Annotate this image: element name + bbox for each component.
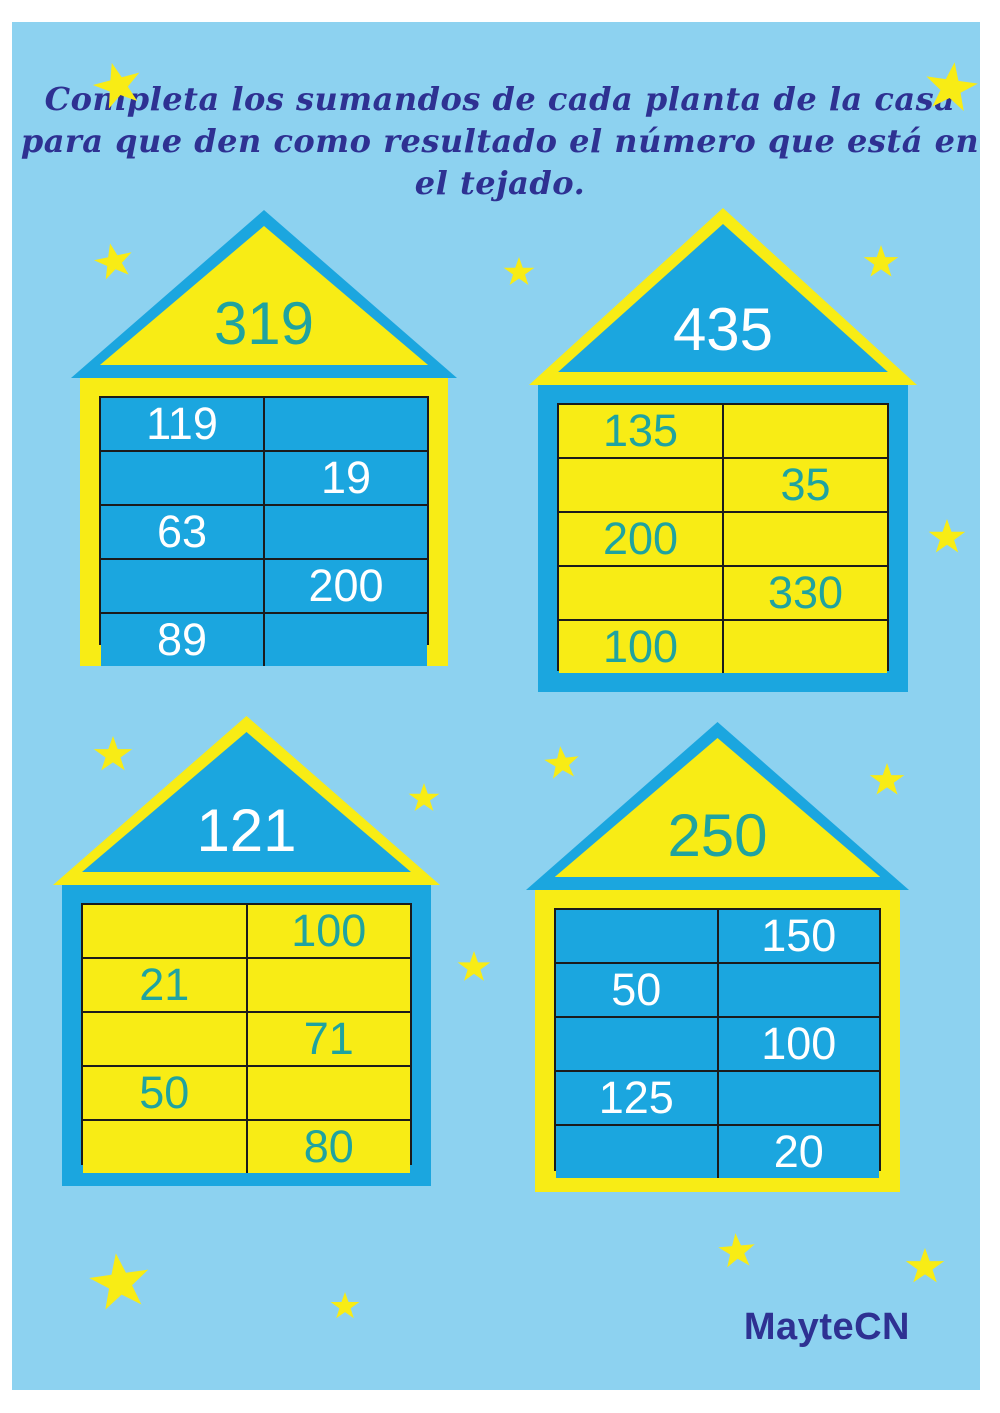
house-floor-row: 100 <box>83 905 410 959</box>
roof-total: 435 <box>529 300 917 360</box>
answer-blank[interactable] <box>556 1126 719 1178</box>
house-floor-row: 100 <box>556 1018 879 1072</box>
addend-value: 150 <box>719 910 880 962</box>
answer-blank[interactable] <box>248 959 411 1011</box>
roof-total: 319 <box>71 294 457 354</box>
addend-value: 330 <box>724 567 887 619</box>
answer-blank[interactable] <box>724 621 887 673</box>
answer-blank[interactable] <box>559 459 724 511</box>
house-250: 250 1505010012520 <box>535 722 900 1192</box>
addend-value: 63 <box>101 506 265 558</box>
addends-table: 10021715080 <box>81 903 412 1165</box>
author-credit: MayteCN <box>744 1306 910 1349</box>
house-floor-row: 119 <box>101 398 427 452</box>
house-floor-row: 125 <box>556 1072 879 1126</box>
addends-table: 119196320089 <box>99 396 429 645</box>
house-121-roof: 121 <box>53 716 440 885</box>
addend-value: 71 <box>248 1013 411 1065</box>
house-250-roof: 250 <box>526 722 909 890</box>
house-250-body: 1505010012520 <box>535 890 900 1192</box>
house-floor-row: 35 <box>559 459 887 513</box>
answer-blank[interactable] <box>719 1072 880 1124</box>
answer-blank[interactable] <box>83 905 248 957</box>
answer-blank[interactable] <box>101 452 265 504</box>
answer-blank[interactable] <box>556 910 719 962</box>
answer-blank[interactable] <box>556 1018 719 1070</box>
addend-value: 21 <box>83 959 248 1011</box>
house-floor-row: 19 <box>101 452 427 506</box>
house-floor-row: 71 <box>83 1013 410 1067</box>
addends-table: 13535200330100 <box>557 403 889 671</box>
answer-blank[interactable] <box>83 1013 248 1065</box>
addend-value: 135 <box>559 405 724 457</box>
house-floor-row: 200 <box>559 513 887 567</box>
house-floor-row: 50 <box>556 964 879 1018</box>
answer-blank[interactable] <box>724 513 887 565</box>
addend-value: 19 <box>265 452 427 504</box>
house-floor-row: 21 <box>83 959 410 1013</box>
addend-value: 89 <box>101 614 265 666</box>
answer-blank[interactable] <box>719 964 880 1016</box>
house-floor-row: 89 <box>101 614 427 666</box>
answer-blank[interactable] <box>248 1067 411 1119</box>
addend-value: 200 <box>559 513 724 565</box>
house-floor-row: 50 <box>83 1067 410 1121</box>
addend-value: 100 <box>248 905 411 957</box>
house-floor-row: 135 <box>559 405 887 459</box>
house-floor-row: 100 <box>559 621 887 673</box>
answer-blank[interactable] <box>265 614 427 666</box>
answer-blank[interactable] <box>83 1121 248 1173</box>
worksheet-instructions: Completa los sumandos de cada planta de … <box>0 78 1000 204</box>
answer-blank[interactable] <box>724 405 887 457</box>
instruction-line-1: Completa los sumandos de cada planta de … <box>0 78 1000 120</box>
instruction-line-2: para que den como resultado el número qu… <box>0 120 1000 204</box>
addend-value: 50 <box>83 1067 248 1119</box>
answer-blank[interactable] <box>265 506 427 558</box>
house-floor-row: 150 <box>556 910 879 964</box>
roof-total: 121 <box>53 801 440 861</box>
addend-value: 20 <box>719 1126 880 1178</box>
house-319: 319 119196320089 <box>80 210 448 666</box>
house-floor-row: 200 <box>101 560 427 614</box>
addend-value: 100 <box>559 621 724 673</box>
addend-value: 200 <box>265 560 427 612</box>
house-435-roof: 435 <box>529 208 917 385</box>
answer-blank[interactable] <box>265 398 427 450</box>
house-floor-row: 330 <box>559 567 887 621</box>
house-435: 435 13535200330100 <box>538 208 908 692</box>
roof-total: 250 <box>526 806 909 866</box>
addend-value: 100 <box>719 1018 880 1070</box>
addend-value: 80 <box>248 1121 411 1173</box>
house-floor-row: 80 <box>83 1121 410 1173</box>
house-319-roof: 319 <box>71 210 457 378</box>
house-319-body: 119196320089 <box>80 378 448 666</box>
addend-value: 119 <box>101 398 265 450</box>
house-floor-row: 20 <box>556 1126 879 1178</box>
answer-blank[interactable] <box>559 567 724 619</box>
house-121-body: 10021715080 <box>62 885 431 1186</box>
house-121: 121 10021715080 <box>62 716 431 1186</box>
answer-blank[interactable] <box>101 560 265 612</box>
addend-value: 50 <box>556 964 719 1016</box>
addends-table: 1505010012520 <box>554 908 881 1171</box>
house-floor-row: 63 <box>101 506 427 560</box>
addend-value: 35 <box>724 459 887 511</box>
house-435-body: 13535200330100 <box>538 385 908 692</box>
addend-value: 125 <box>556 1072 719 1124</box>
